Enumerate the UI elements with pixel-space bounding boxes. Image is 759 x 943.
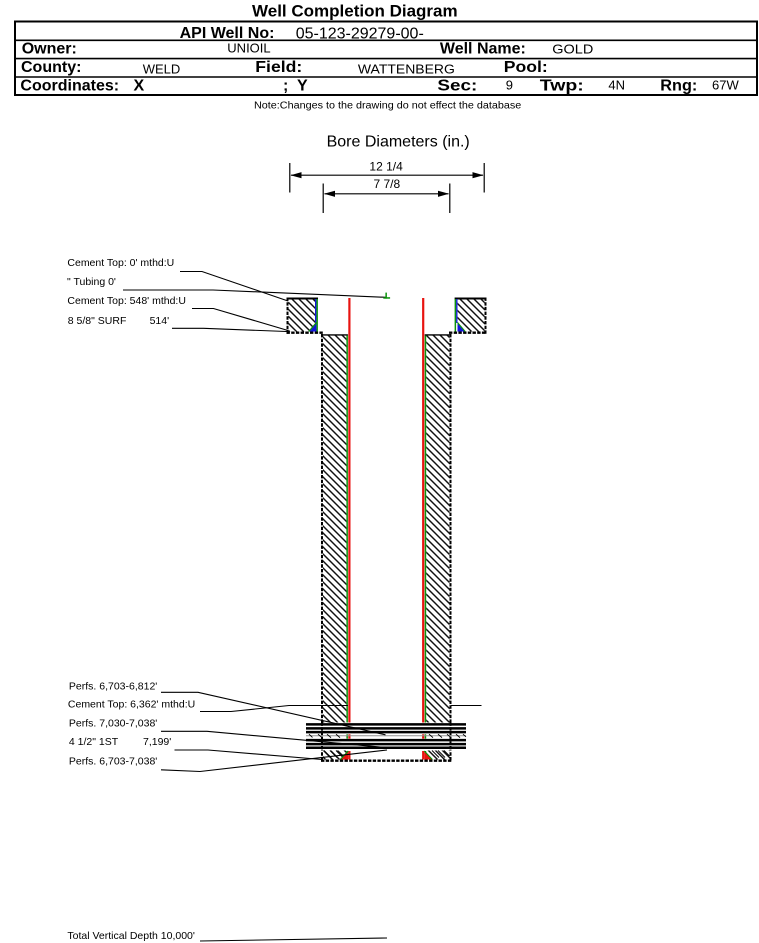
svg-text:WATTENBERG: WATTENBERG: [358, 62, 455, 77]
svg-text:WELD: WELD: [143, 62, 181, 77]
svg-text:Rng:: Rng:: [660, 77, 697, 94]
svg-text:7,199': 7,199': [143, 736, 171, 748]
svg-text:Cement Top: 6,362' mthd:U: Cement Top: 6,362' mthd:U: [68, 699, 195, 711]
svg-text:UNIOIL: UNIOIL: [227, 41, 270, 56]
svg-text:4N: 4N: [608, 77, 625, 92]
svg-text:Perfs. 6,703-6,812': Perfs. 6,703-6,812': [69, 680, 157, 692]
svg-text:4 1/2" 1ST: 4 1/2" 1ST: [69, 736, 119, 748]
svg-text:API Well No:: API Well No:: [180, 25, 275, 42]
svg-text:Cement Top: 0' mthd:U: Cement Top: 0' mthd:U: [67, 257, 174, 269]
svg-text:Well Completion Diagram: Well Completion Diagram: [252, 1, 458, 20]
svg-text:County:: County:: [21, 59, 81, 76]
svg-text:" Tubing 0': " Tubing 0': [67, 276, 116, 288]
svg-text:Bore Diameters (in.): Bore Diameters (in.): [327, 133, 470, 150]
svg-text:Sec:: Sec:: [437, 77, 477, 94]
svg-text:;: ;: [283, 77, 288, 94]
svg-text:8 5/8" SURF: 8 5/8" SURF: [68, 315, 127, 327]
svg-text:Total Vertical Depth 10,000': Total Vertical Depth 10,000': [67, 930, 195, 942]
svg-text:Field:: Field:: [255, 59, 302, 76]
svg-text:Note:Changes to the drawing do: Note:Changes to the drawing do not effec…: [254, 101, 522, 112]
svg-text:05-123-29279-00-: 05-123-29279-00-: [296, 25, 424, 42]
svg-text:Owner:: Owner:: [22, 40, 77, 57]
svg-text:Pool:: Pool:: [504, 59, 548, 76]
svg-text:Perfs. 7,030-7,038': Perfs. 7,030-7,038': [69, 717, 157, 729]
svg-text:7 7/8: 7 7/8: [374, 177, 401, 191]
svg-text:67W: 67W: [712, 77, 739, 92]
svg-text:12 1/4: 12 1/4: [369, 160, 403, 174]
svg-text:Y: Y: [297, 77, 308, 94]
svg-text:Coordinates:: Coordinates:: [20, 77, 119, 94]
svg-text:X: X: [134, 77, 145, 94]
svg-text:Twp:: Twp:: [540, 77, 584, 94]
svg-text:GOLD: GOLD: [552, 41, 593, 56]
svg-text:514': 514': [150, 315, 170, 327]
svg-text:Cement Top: 548' mthd:U: Cement Top: 548' mthd:U: [67, 295, 186, 307]
svg-text:9: 9: [506, 77, 513, 92]
svg-text:Well Name:: Well Name:: [440, 40, 526, 57]
svg-text:Perfs. 6,703-7,038': Perfs. 6,703-7,038': [69, 755, 157, 767]
